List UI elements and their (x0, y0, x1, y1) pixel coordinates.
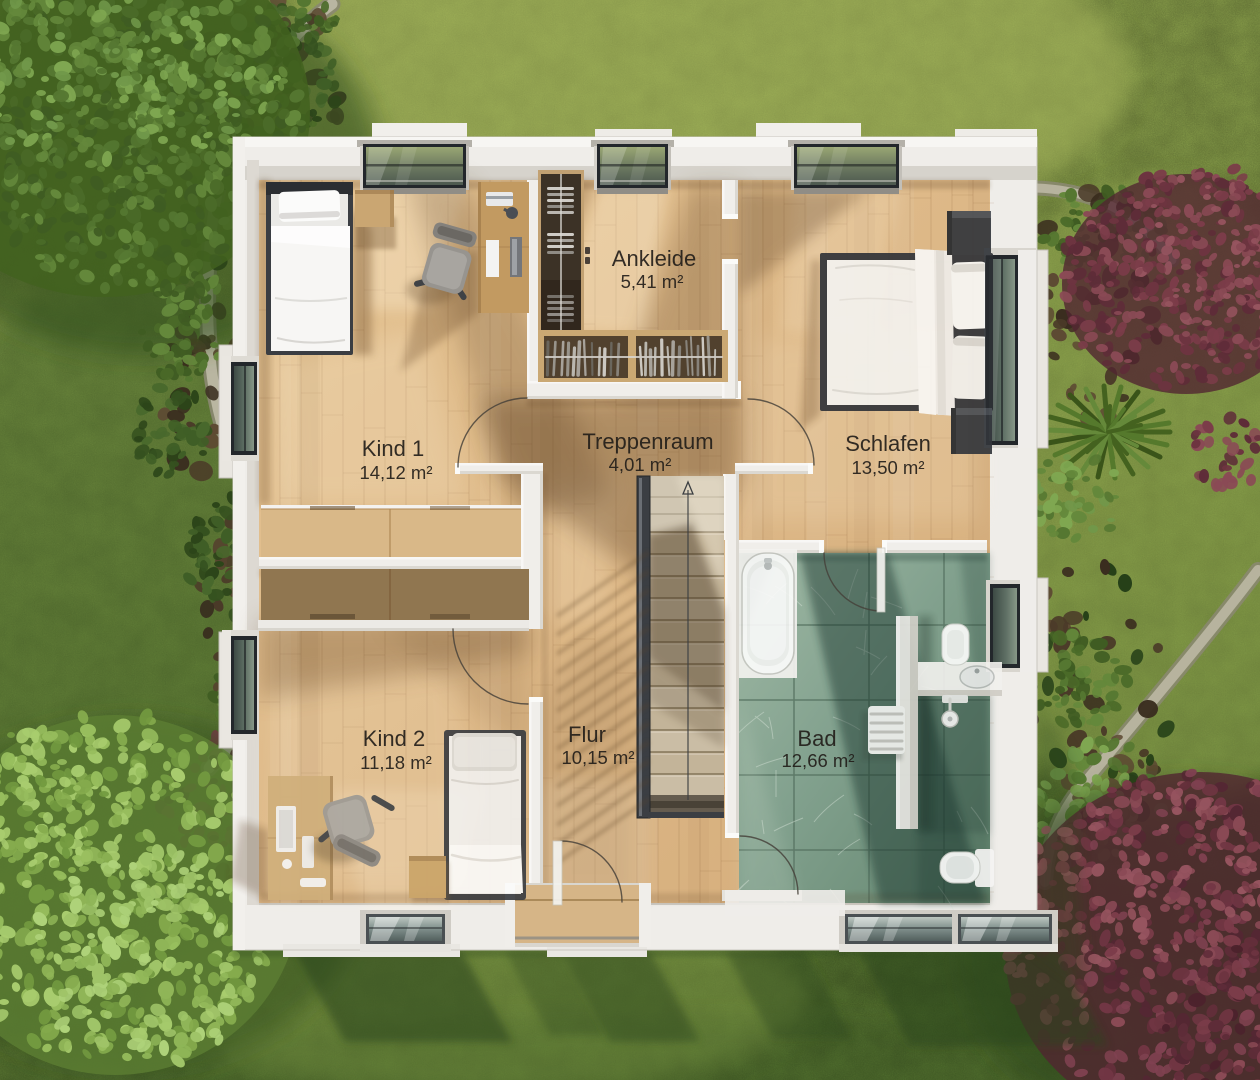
svg-text:Treppenraum: Treppenraum (582, 429, 713, 454)
svg-text:5,41 m²: 5,41 m² (621, 271, 684, 292)
svg-text:Bad: Bad (797, 726, 836, 751)
svg-text:Schlafen: Schlafen (845, 431, 931, 456)
svg-text:11,18 m²: 11,18 m² (360, 752, 432, 773)
svg-text:Ankleide: Ankleide (612, 246, 696, 271)
svg-text:14,12 m²: 14,12 m² (359, 462, 432, 483)
svg-text:12,66 m²: 12,66 m² (781, 750, 854, 771)
svg-text:10,15 m²: 10,15 m² (561, 747, 634, 768)
svg-text:Flur: Flur (568, 722, 606, 747)
svg-text:13,50 m²: 13,50 m² (851, 457, 924, 478)
svg-text:Kind 1: Kind 1 (362, 436, 424, 461)
svg-text:4,01 m²: 4,01 m² (609, 454, 672, 475)
svg-text:Kind 2: Kind 2 (363, 726, 425, 751)
